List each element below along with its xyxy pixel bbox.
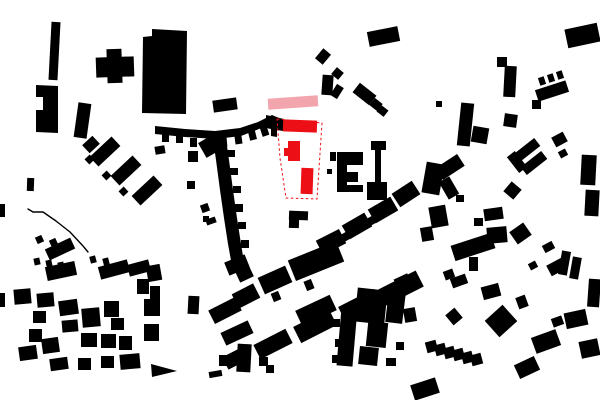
building-footprint bbox=[41, 337, 60, 354]
building-footprint bbox=[190, 138, 197, 147]
building-footprint bbox=[220, 320, 253, 345]
building-footprint bbox=[150, 286, 160, 299]
building-footprint bbox=[104, 301, 119, 317]
building-footprint bbox=[514, 356, 540, 379]
building-footprint bbox=[36, 292, 54, 307]
building-footprint bbox=[547, 73, 555, 82]
building-footprint bbox=[234, 136, 242, 145]
building-footprint bbox=[62, 319, 79, 332]
building-footprint bbox=[208, 297, 242, 324]
building-footprint bbox=[367, 26, 400, 47]
building-footprint bbox=[580, 155, 597, 186]
building-footprint bbox=[154, 145, 165, 155]
building-footprint bbox=[33, 311, 46, 323]
building-footprint bbox=[386, 358, 396, 366]
site-plan-figure bbox=[0, 0, 600, 400]
building-footprint bbox=[337, 307, 358, 366]
building-footprint bbox=[542, 241, 555, 253]
building-footprint bbox=[58, 299, 79, 316]
building-footprint bbox=[188, 151, 198, 162]
building-footprint bbox=[483, 207, 503, 222]
building-footprint bbox=[144, 299, 160, 316]
building-footprint bbox=[29, 329, 42, 342]
building-footprint bbox=[266, 365, 274, 373]
proposed-bar-footprint bbox=[268, 95, 319, 109]
context-buildings bbox=[0, 22, 600, 400]
building-footprint bbox=[289, 218, 299, 228]
building-footprint bbox=[258, 266, 293, 295]
building-footprint bbox=[119, 353, 140, 370]
building-footprint bbox=[187, 181, 195, 189]
building-footprint bbox=[330, 152, 336, 161]
building-footprint bbox=[403, 307, 417, 323]
building-footprint bbox=[27, 178, 34, 191]
building-footprint bbox=[445, 308, 463, 326]
building-footprint bbox=[515, 295, 529, 310]
building-footprint bbox=[102, 257, 110, 265]
building-footprint bbox=[241, 240, 249, 248]
building-footprint bbox=[551, 132, 568, 148]
building-footprint bbox=[36, 85, 58, 133]
building-footprint bbox=[33, 257, 40, 265]
building-footprint bbox=[587, 279, 600, 308]
building-footprint bbox=[253, 329, 292, 360]
building-footprint bbox=[569, 256, 582, 279]
building-footprint bbox=[481, 283, 502, 300]
building-footprint bbox=[271, 291, 282, 302]
building-footprint bbox=[551, 315, 564, 327]
building-footprint bbox=[332, 355, 339, 363]
building-footprint bbox=[233, 186, 241, 193]
building-footprint bbox=[111, 156, 142, 186]
building-footprint bbox=[45, 259, 52, 267]
building-footprint bbox=[132, 176, 163, 206]
building-footprint bbox=[142, 29, 187, 114]
building-footprint bbox=[0, 204, 5, 217]
building-footprint bbox=[235, 204, 243, 212]
building-footprint bbox=[89, 255, 97, 263]
building-footprint bbox=[119, 336, 132, 350]
building-footprint bbox=[578, 338, 600, 359]
building-footprint bbox=[48, 22, 60, 80]
building-footprint bbox=[497, 57, 507, 67]
building-footprint bbox=[102, 171, 112, 181]
building-footprint bbox=[474, 218, 483, 226]
building-footprint bbox=[337, 152, 363, 192]
building-footprint bbox=[558, 250, 571, 275]
figure-ground-map bbox=[0, 0, 600, 400]
building-footprint bbox=[151, 364, 177, 377]
building-footprint bbox=[335, 339, 342, 347]
building-footprint bbox=[188, 296, 200, 315]
building-footprint bbox=[428, 205, 448, 229]
building-footprint bbox=[35, 235, 44, 244]
building-footprint bbox=[366, 321, 389, 348]
building-footprint bbox=[410, 377, 440, 400]
building-footprint bbox=[98, 259, 130, 279]
building-footprint bbox=[556, 70, 564, 79]
building-footprint bbox=[509, 222, 532, 244]
building-footprint bbox=[137, 279, 149, 294]
building-footprint bbox=[288, 241, 344, 281]
site-building-footprint bbox=[301, 168, 314, 194]
building-footprint bbox=[436, 101, 442, 107]
building-footprint bbox=[456, 195, 464, 202]
building-footprint bbox=[78, 358, 91, 370]
building-footprint bbox=[503, 66, 517, 98]
building-footprint bbox=[101, 356, 114, 368]
building-footprint bbox=[176, 136, 183, 143]
site-building-footprint bbox=[284, 141, 300, 161]
building-footprint bbox=[203, 216, 209, 222]
building-footprint bbox=[558, 149, 568, 159]
building-footprint bbox=[396, 342, 404, 350]
building-footprint bbox=[564, 309, 589, 329]
building-footprint bbox=[315, 48, 331, 64]
building-footprint bbox=[200, 203, 210, 213]
building-footprint bbox=[111, 318, 124, 330]
building-footprint bbox=[327, 169, 332, 174]
building-footprint bbox=[0, 293, 5, 307]
building-footprint bbox=[333, 319, 340, 327]
building-footprint bbox=[18, 345, 38, 361]
building-footprint bbox=[485, 305, 518, 337]
building-footprint bbox=[144, 324, 159, 341]
building-footprint bbox=[503, 181, 521, 199]
building-footprint bbox=[212, 97, 237, 112]
building-footprint bbox=[81, 333, 97, 347]
building-footprint bbox=[101, 334, 116, 348]
building-footprint bbox=[219, 355, 231, 366]
site-buildings bbox=[283, 119, 317, 194]
building-footprint bbox=[81, 307, 101, 327]
building-footprint bbox=[354, 288, 387, 325]
building-footprint bbox=[451, 233, 496, 261]
building-footprint bbox=[238, 222, 246, 229]
building-footprint bbox=[528, 261, 538, 271]
building-footprint bbox=[358, 346, 379, 366]
building-footprint bbox=[236, 344, 251, 373]
site-building-footprint bbox=[283, 119, 317, 132]
building-footprint bbox=[392, 181, 421, 207]
building-footprint bbox=[259, 357, 268, 366]
building-footprint bbox=[503, 113, 518, 128]
building-footprint bbox=[584, 190, 599, 217]
proposed-bar bbox=[268, 95, 319, 109]
building-footprint bbox=[469, 257, 478, 271]
building-footprint bbox=[367, 141, 387, 200]
building-footprint bbox=[74, 102, 92, 138]
building-footprint bbox=[532, 100, 541, 109]
building-footprint bbox=[119, 187, 129, 197]
building-footprint bbox=[303, 279, 314, 291]
building-footprint bbox=[471, 126, 490, 145]
building-footprint bbox=[420, 226, 434, 242]
building-footprint bbox=[13, 288, 31, 304]
building-footprint bbox=[106, 49, 122, 84]
building-footprint bbox=[49, 357, 68, 371]
building-footprint bbox=[209, 370, 223, 378]
building-footprint bbox=[538, 76, 546, 85]
building-footprint bbox=[230, 168, 238, 175]
building-footprint bbox=[564, 23, 600, 48]
